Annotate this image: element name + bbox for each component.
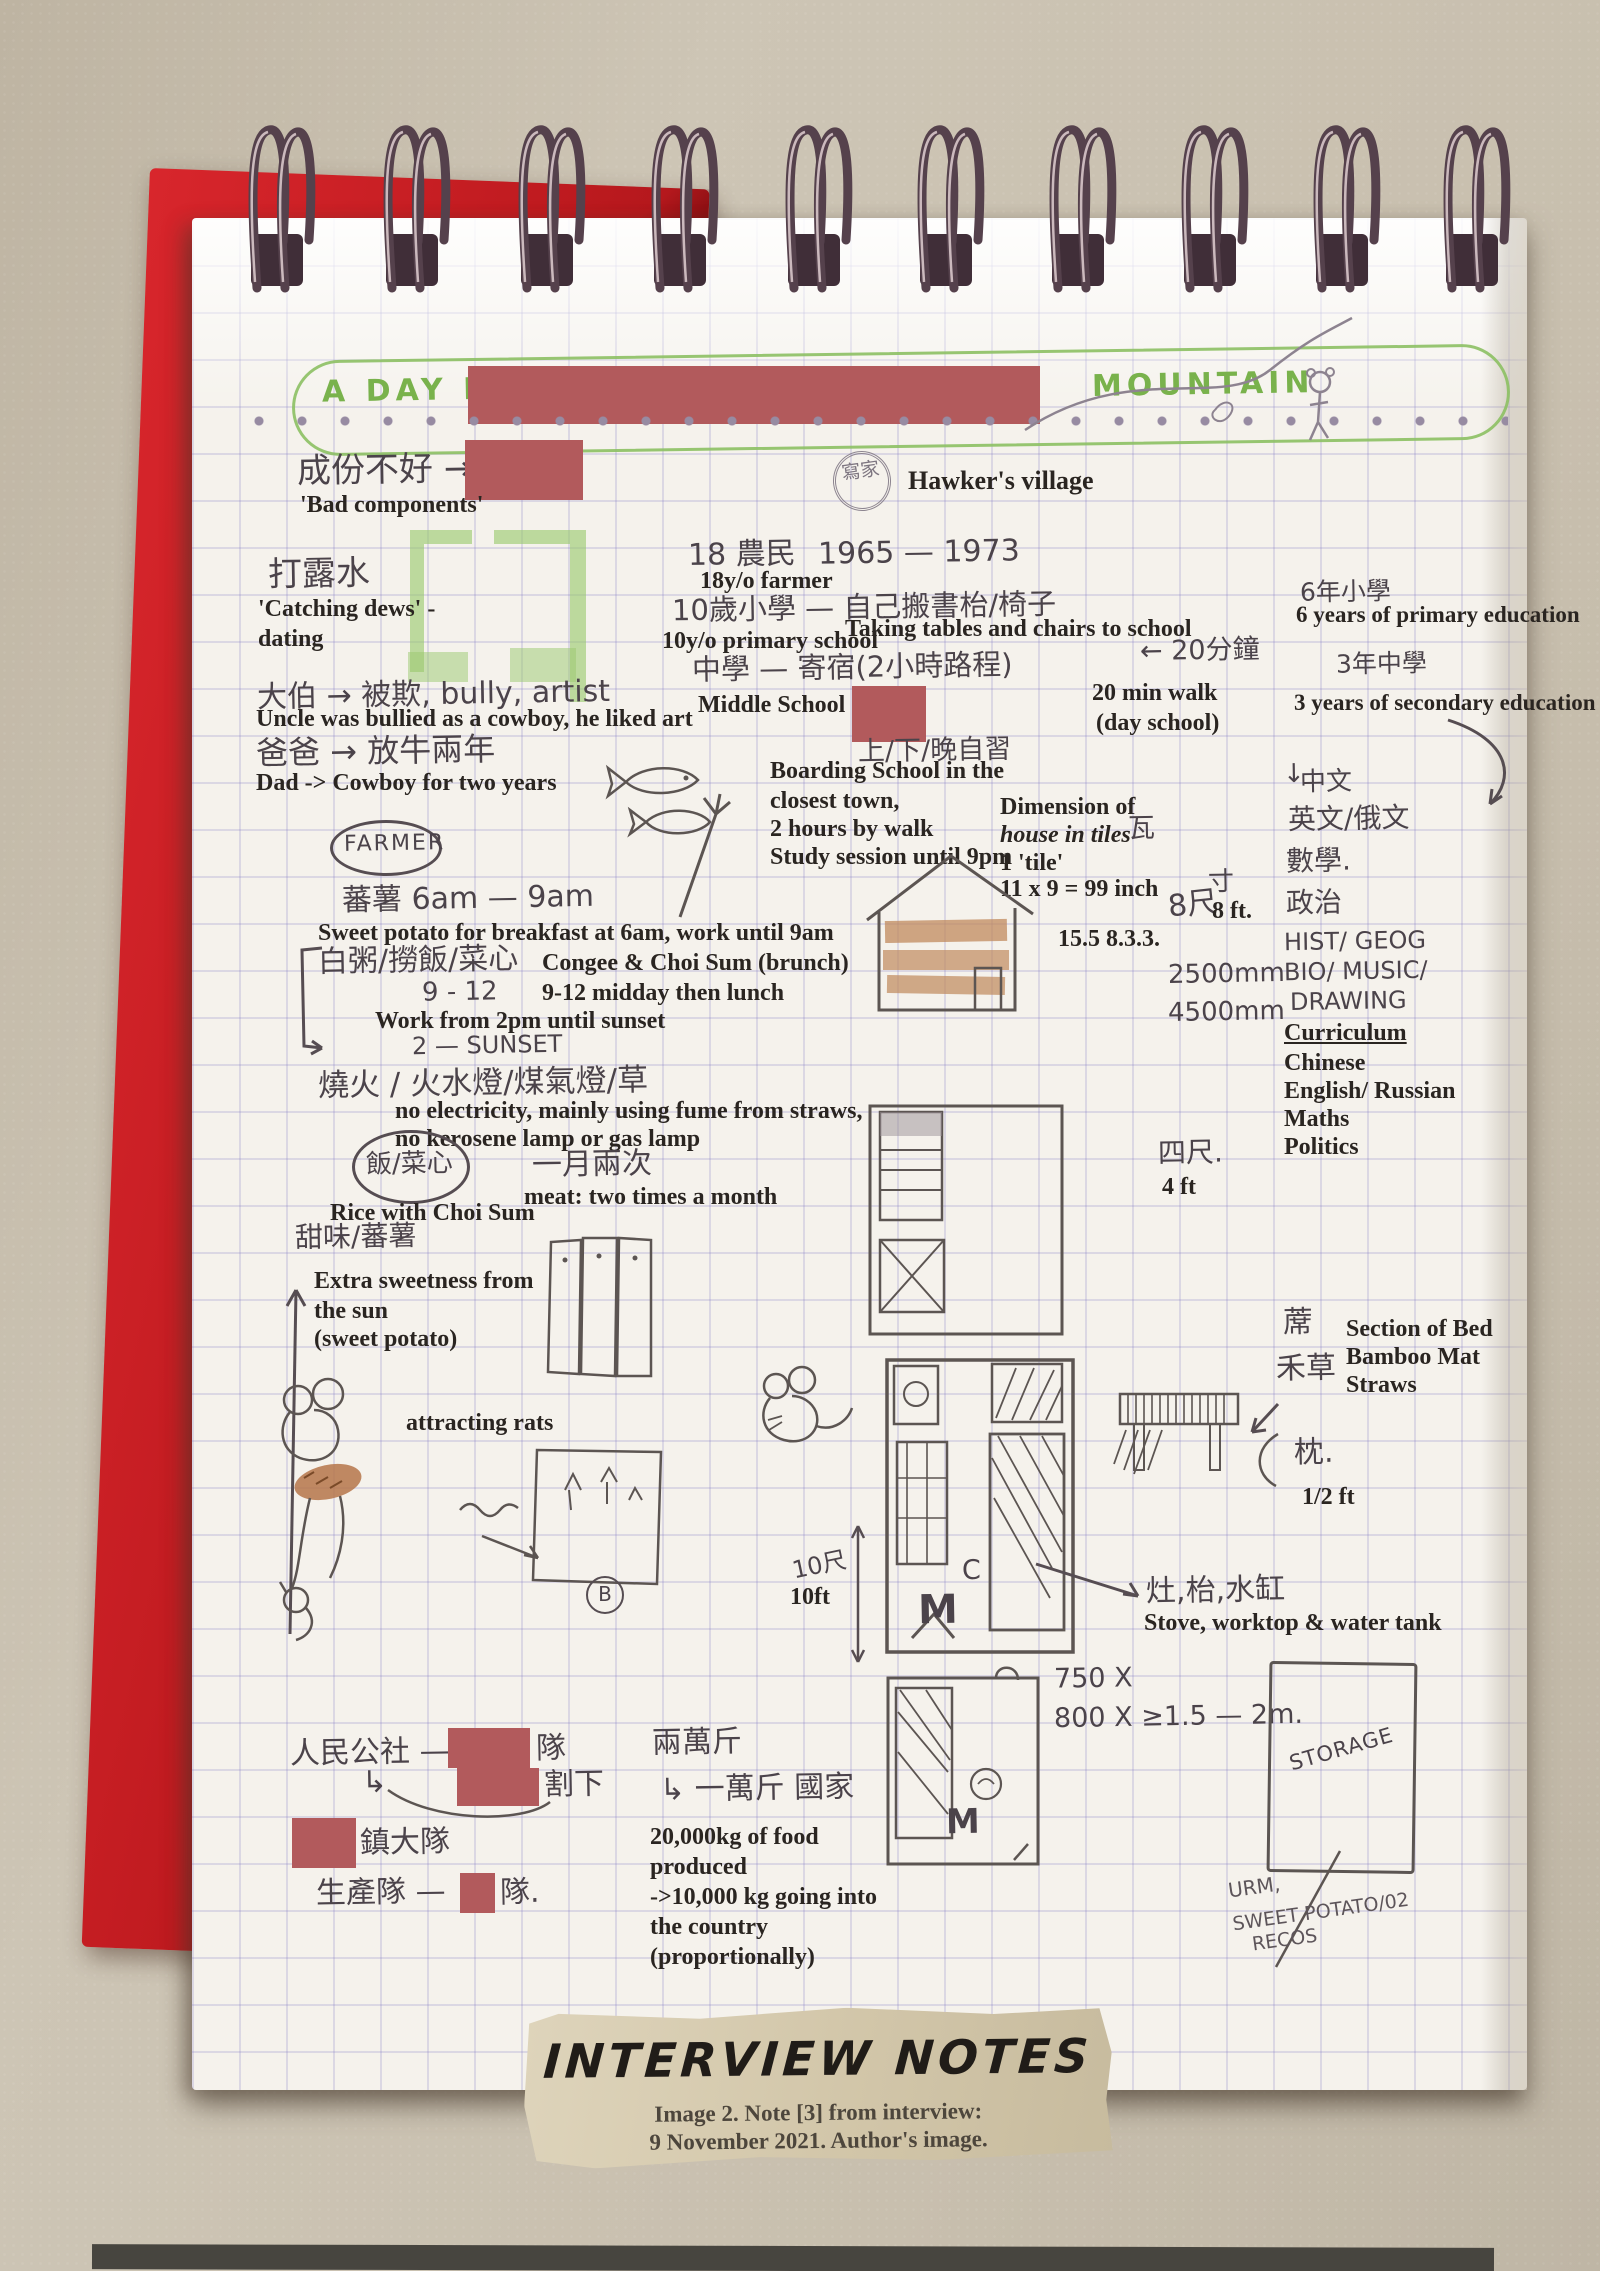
note-dimension1: Dimension of bbox=[1000, 794, 1135, 822]
note-sweet-potato-zh: 蕃薯 6am — 9am bbox=[342, 880, 595, 917]
spiral-ring bbox=[1290, 92, 1390, 307]
note-congee-en: Congee & Choi Sum (brunch) bbox=[542, 950, 849, 978]
note-2-sunset: 2 — SUNSET bbox=[412, 1031, 563, 1060]
note-years: 1965 — 1973 bbox=[818, 534, 1020, 571]
note-4500mm: 4500mm bbox=[1168, 997, 1285, 1028]
note-800x: 800 X ≥1.5 — 2m. bbox=[1054, 1700, 1303, 1734]
note-rice-zh: 飯/菜心 bbox=[366, 1149, 453, 1179]
note-maths-zh: 數學. bbox=[1286, 845, 1351, 877]
spiral-ring bbox=[894, 92, 994, 307]
note-10ft-en: 10ft bbox=[790, 1584, 830, 1612]
spiral-ring bbox=[1420, 92, 1520, 307]
spiral-ring bbox=[1026, 92, 1126, 307]
note-commune-zh2: 割下 bbox=[544, 1767, 605, 1801]
curriculum-english-russian: English/ Russian bbox=[1284, 1078, 1455, 1106]
floor-plan-main bbox=[872, 1348, 1107, 1668]
curriculum-heading: Curriculum bbox=[1284, 1020, 1407, 1048]
note-bed-section-en2: Bamboo Mat bbox=[1346, 1344, 1480, 1372]
note-catching-dews-en1: 'Catching dews' - bbox=[258, 596, 435, 624]
bracket-arrow bbox=[292, 942, 332, 1062]
note-dimension2: house in tiles bbox=[1000, 822, 1131, 850]
curriculum-chinese: Chinese bbox=[1284, 1050, 1365, 1078]
note-congee-zh: 白粥/撈飯/菜心 bbox=[318, 942, 519, 978]
note-pillow-zh: 枕. bbox=[1294, 1436, 1334, 1470]
spiral-ring bbox=[628, 92, 728, 307]
note-commune-zh4b: 隊. bbox=[500, 1876, 540, 1910]
redaction-box-commune4 bbox=[460, 1873, 495, 1913]
note-3yr-en: 3 years of secondary education bbox=[1294, 690, 1596, 716]
note-english-russian-zh: 英文/俄文 bbox=[1288, 803, 1410, 836]
mouse-sketch bbox=[752, 1368, 862, 1468]
note-bio-music: BIO/ MUSIC/ bbox=[1284, 957, 1428, 986]
note-boarding3: 2 hours by walk bbox=[770, 816, 933, 844]
note-dim-nums: 15.5 8.3.3. bbox=[1058, 926, 1160, 954]
note-750x: 750 X bbox=[1054, 1663, 1133, 1694]
fish-fork-sketch bbox=[598, 752, 753, 927]
note-catching-dews-en2: dating bbox=[258, 626, 323, 654]
note-hawkers-village: Hawker's village bbox=[908, 466, 1094, 496]
floor-plan-upper bbox=[862, 1098, 1072, 1343]
dimension-line-10ft bbox=[848, 1518, 870, 1670]
note-dad-en: Dad -> Cowboy for two years bbox=[256, 770, 557, 798]
note-18-farmer-zh: 18 農民 bbox=[688, 537, 796, 572]
spiral-ring bbox=[225, 92, 325, 307]
note-attracting-rats: attracting rats bbox=[406, 1410, 553, 1438]
tape-caption2: 9 November 2021. Author's image. bbox=[524, 2125, 1112, 2157]
spiral-ring bbox=[762, 92, 862, 307]
note-dad-zh: 爸爸 → 放牛兩年 bbox=[256, 732, 496, 771]
note-6yr-en: 6 years of primary education bbox=[1296, 602, 1580, 628]
note-middle-zh: 中學 — 寄宿(2小時路程) bbox=[692, 649, 1013, 686]
note-hist-geog: HIST/ GEOG bbox=[1284, 927, 1426, 956]
note-food-en2: produced bbox=[650, 1854, 747, 1882]
curriculum-maths: Maths bbox=[1284, 1106, 1349, 1134]
note-food-zh2: ↳ 一萬斤 國家 bbox=[660, 1770, 855, 1806]
note-middle-en: Middle School bbox=[698, 692, 845, 720]
note-food-en1: 20,000kg of food bbox=[650, 1824, 819, 1852]
note-no-electricity: no electricity, mainly using fume from s… bbox=[395, 1098, 863, 1126]
plan-label-c: C bbox=[962, 1556, 981, 1586]
note-20min-walk: 20 min walk bbox=[1092, 680, 1217, 708]
redaction-box-commune1 bbox=[448, 1728, 530, 1768]
note-food-en5: (proportionally) bbox=[650, 1944, 815, 1972]
squiggle-note bbox=[452, 1492, 582, 1572]
house-sketch bbox=[855, 848, 1045, 1018]
note-4ft-en: 4 ft bbox=[1162, 1174, 1196, 1202]
tape-label: INTERVIEW NOTES Image 2. Note [3] from i… bbox=[523, 2005, 1113, 2169]
note-commune-zh4: 生產隊 — bbox=[316, 1875, 446, 1910]
curved-arrow-down bbox=[1440, 712, 1530, 822]
note-8ft-en: 8 ft. bbox=[1212, 898, 1252, 926]
mouse-with-food-sketch bbox=[270, 1378, 420, 1648]
arrow-to-stove bbox=[1030, 1558, 1150, 1606]
note-day-school: (day school) bbox=[1096, 710, 1219, 738]
scan-bottom-band bbox=[92, 2244, 1494, 2271]
note-meat-zh: 一月兩次 bbox=[532, 1147, 653, 1182]
note-boarding1: Boarding School in the bbox=[770, 758, 1004, 786]
redaction-box-commune3 bbox=[292, 1818, 356, 1868]
plan-label-m2: M bbox=[946, 1804, 980, 1842]
note-politics-zh: 政治 bbox=[1286, 888, 1343, 920]
note-sweetness-zh: 甜味/蕃薯 bbox=[295, 1221, 417, 1254]
girl-doodle bbox=[1020, 290, 1360, 460]
note-tile-zh: 瓦 bbox=[1128, 814, 1156, 844]
note-3yr-zh: 3年中學 bbox=[1336, 649, 1427, 678]
note-food-en4: the country bbox=[650, 1914, 768, 1942]
spiral-ring bbox=[1158, 92, 1258, 307]
note-half-ft: 1/2 ft bbox=[1302, 1484, 1355, 1512]
note-meat-en: meat: two times a month bbox=[524, 1184, 777, 1212]
note-4ft-zh: 四尺. bbox=[1158, 1137, 1223, 1169]
note-chinese-zh: 中文 bbox=[1300, 768, 1353, 797]
redaction-box-bad-components bbox=[465, 440, 583, 500]
tape-title: INTERVIEW NOTES bbox=[522, 2029, 1113, 2090]
page-crinkled-edge bbox=[1481, 218, 1527, 2090]
note-bad-components-en: 'Bad components' bbox=[300, 492, 483, 520]
note-drawing: DRAWING bbox=[1290, 987, 1407, 1015]
note-fire-zh: 燒火 / 火水燈/煤氣燈/草 bbox=[318, 1063, 649, 1103]
note-sweetness-en1: Extra sweetness from bbox=[314, 1268, 534, 1296]
note-sweetness-en2: the sun bbox=[314, 1298, 388, 1326]
label-b-circle: B bbox=[586, 1576, 624, 1614]
paren-curve bbox=[1246, 1428, 1288, 1492]
note-catching-dews-zh: 打露水 bbox=[268, 555, 371, 594]
redaction-box-commune2 bbox=[457, 1768, 539, 1806]
note-8ft-zh: 8尺 bbox=[1166, 886, 1218, 924]
note-sweetness-en3: (sweet potato) bbox=[314, 1326, 457, 1354]
floor-plan-lower bbox=[878, 1662, 1058, 1882]
note-bed-section-en3: Straws bbox=[1346, 1372, 1417, 1400]
note-mat-zh1: 蓆 bbox=[1283, 1306, 1314, 1340]
note-stove-en: Stove, worktop & water tank bbox=[1144, 1610, 1442, 1638]
note-bed-section-en1: Section of Bed bbox=[1346, 1316, 1493, 1344]
bed-cross-section-sketch bbox=[1112, 1372, 1252, 1497]
note-food-en3: ->10,000 kg going into bbox=[650, 1884, 877, 1912]
note-food-zh1: 兩萬斤 bbox=[652, 1725, 743, 1760]
plan-label-m: M bbox=[918, 1588, 959, 1633]
wardrobe-sketch bbox=[543, 1232, 658, 1382]
tape-caption1: Image 2. Note [3] from interview: bbox=[524, 2097, 1112, 2129]
spiral-ring bbox=[495, 92, 595, 307]
redaction-box-school bbox=[852, 686, 926, 742]
storage-box-sketch bbox=[1267, 1661, 1418, 1874]
note-2500mm: 2500mm bbox=[1168, 959, 1285, 990]
note-mat-zh2: 禾草 bbox=[1276, 1351, 1337, 1385]
note-farmer-label: FARMER bbox=[344, 831, 446, 857]
note-stove-zh: 灶,枱,水缸 bbox=[1146, 1573, 1286, 1608]
note-commune-zh1b: 隊 bbox=[536, 1732, 567, 1766]
note-912-hw: 9 - 12 bbox=[422, 977, 498, 1007]
note-912-en: 9-12 midday then lunch bbox=[542, 980, 784, 1008]
note-commune-zh3: 鎮大隊 bbox=[360, 1825, 451, 1860]
note-20min-zh: ← 20分鐘 bbox=[1140, 635, 1260, 667]
note-boarding2: closest town, bbox=[770, 788, 899, 816]
curriculum-politics: Politics bbox=[1284, 1134, 1359, 1162]
scanned-notebook-photo: A DAY IN MOUNTAIN 成份不好 → 'Bad components… bbox=[0, 0, 1600, 2271]
spiral-ring bbox=[360, 92, 460, 307]
note-bad-components-zh: 成份不好 → bbox=[297, 450, 473, 490]
